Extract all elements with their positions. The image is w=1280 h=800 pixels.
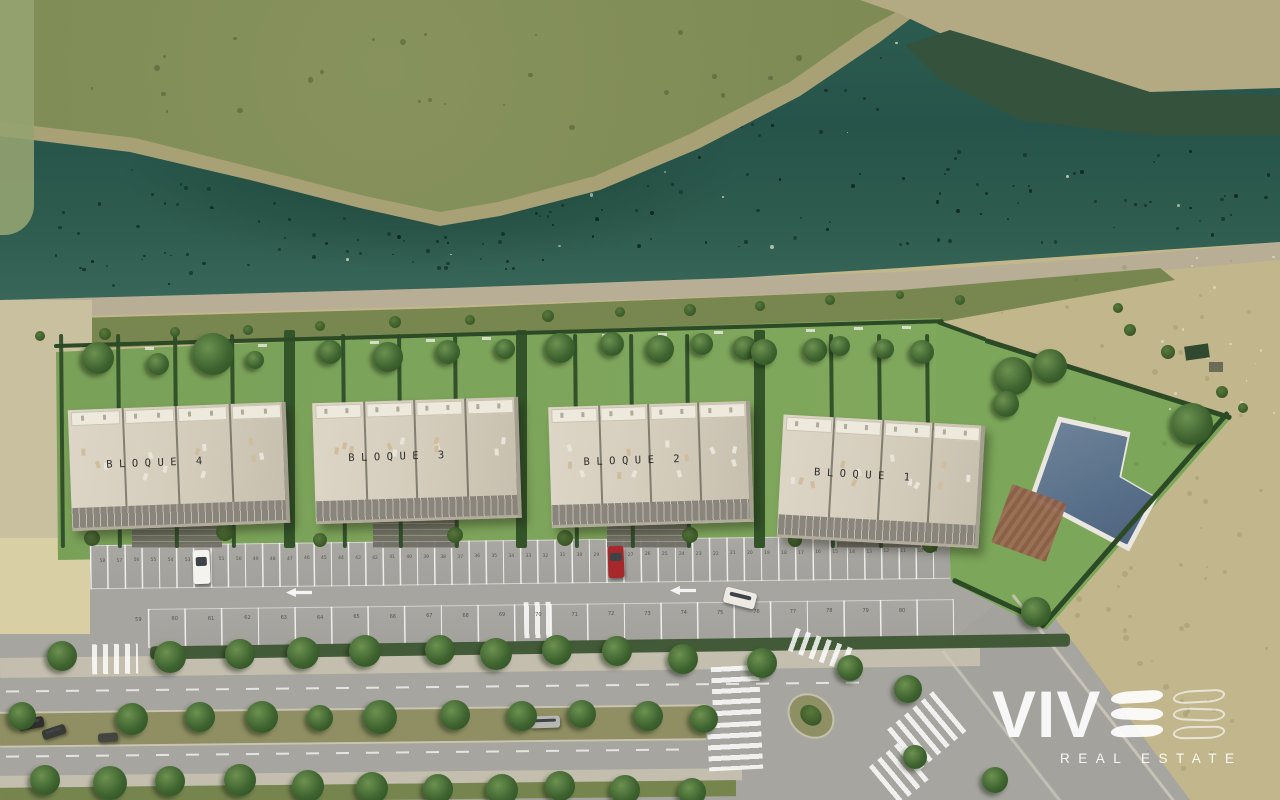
scrub-texture-dot xyxy=(1123,628,1128,633)
roof-furniture xyxy=(732,446,737,454)
bush xyxy=(99,328,111,340)
parking-number: 80 xyxy=(899,609,905,614)
water-speckle xyxy=(936,200,939,203)
water-speckle xyxy=(512,267,515,270)
water-speckle xyxy=(770,245,774,249)
scrub-texture-dot xyxy=(1178,350,1183,355)
roof-vent xyxy=(729,408,732,413)
scrub-texture-dot xyxy=(1076,596,1082,602)
land-texture-dot xyxy=(308,77,314,83)
land-texture-dot xyxy=(535,34,537,36)
roundabout-bush xyxy=(796,701,826,730)
scrub-texture-dot xyxy=(1237,532,1243,538)
land-texture-dot xyxy=(424,33,427,36)
tree xyxy=(192,333,234,375)
scrub-texture-dot xyxy=(1206,566,1208,568)
parking-number: 58 xyxy=(100,560,106,565)
tree xyxy=(542,635,572,665)
water-speckle xyxy=(1023,153,1026,156)
scrub-texture-dot xyxy=(1106,607,1111,612)
water-speckle xyxy=(164,252,166,254)
roof-top-strip xyxy=(700,403,746,418)
tree xyxy=(994,357,1032,395)
vive-logo: VIV REAL ESTATE xyxy=(992,686,1280,766)
water-speckle xyxy=(112,284,115,287)
parking-number: 22 xyxy=(713,553,719,558)
land-texture-dot xyxy=(712,74,717,79)
scrub-texture-dot xyxy=(1199,294,1202,297)
scrub-rock xyxy=(1246,380,1247,381)
parked-red-car xyxy=(607,546,624,579)
roof-vent xyxy=(709,408,712,413)
roof-furniture xyxy=(259,452,264,460)
roof-furniture xyxy=(890,455,895,463)
tree xyxy=(545,333,575,363)
roof-furniture xyxy=(937,482,943,490)
tree xyxy=(480,638,512,670)
water-speckle xyxy=(82,268,85,271)
tree xyxy=(155,766,185,796)
parking-number: 57 xyxy=(117,560,123,565)
tree xyxy=(837,655,863,681)
water-speckle xyxy=(1189,207,1192,210)
parking-number: 51 xyxy=(219,558,225,563)
water-speckle xyxy=(779,178,782,181)
roof-furniture xyxy=(665,440,669,447)
parking-number: 33 xyxy=(526,555,532,560)
parking-number: 39 xyxy=(423,556,429,561)
scrub-texture-dot xyxy=(1259,489,1263,493)
water-speckle xyxy=(1144,204,1147,207)
parking-number: 45 xyxy=(321,557,327,562)
water-speckle xyxy=(1153,161,1155,163)
parking-number: 68 xyxy=(462,614,468,619)
water-speckle xyxy=(1220,198,1224,202)
parking-number: 40 xyxy=(406,556,412,561)
water-speckle xyxy=(1080,170,1084,174)
bloque-3-label: BLOQUE 3 xyxy=(348,448,451,463)
roof-vent xyxy=(476,404,479,409)
scrub-texture-dot xyxy=(1001,312,1004,315)
bush xyxy=(465,315,475,325)
water-speckle xyxy=(98,202,102,206)
tree xyxy=(690,705,718,733)
water-speckle xyxy=(758,134,761,137)
scrub-texture-dot xyxy=(1200,527,1202,529)
tree xyxy=(507,701,537,731)
scrub-texture-dot xyxy=(1151,660,1153,662)
water-speckle xyxy=(202,262,205,265)
land-texture-dot xyxy=(796,55,801,60)
water-speckle xyxy=(1267,173,1271,177)
bush xyxy=(1124,324,1136,336)
parking-number: 23 xyxy=(696,553,702,558)
land-texture-dot xyxy=(444,103,446,105)
tree xyxy=(751,339,777,365)
water-speckle xyxy=(1157,154,1160,157)
tree xyxy=(633,701,663,731)
tree xyxy=(747,648,777,678)
tree xyxy=(830,336,850,356)
tree xyxy=(373,342,403,372)
tree xyxy=(224,764,256,796)
northwest-edge-strip xyxy=(0,0,34,235)
roof-top-strip xyxy=(885,422,931,439)
water-speckle xyxy=(751,123,754,126)
tree xyxy=(356,772,388,800)
water-speckle xyxy=(91,260,94,263)
water-speckle xyxy=(976,183,979,186)
tree xyxy=(993,391,1019,417)
roof-vent xyxy=(375,408,378,413)
bloque-1-building: BLOQUE 1 xyxy=(777,414,986,548)
bush xyxy=(1113,303,1123,313)
roof-furniture xyxy=(202,444,207,451)
roof-vent xyxy=(210,411,213,416)
parking-number: 78 xyxy=(826,609,832,614)
tree xyxy=(147,353,169,375)
car-windshield xyxy=(101,734,115,737)
parking-number: 35 xyxy=(491,555,497,560)
parking-number: 63 xyxy=(281,616,287,621)
water-speckle xyxy=(948,239,952,243)
scrub-texture-dot xyxy=(1265,647,1268,650)
plot-gate-mark xyxy=(370,341,379,344)
land-texture-dot xyxy=(569,125,574,130)
scrub-texture-dot xyxy=(1134,462,1138,466)
parking-number: 46 xyxy=(304,557,310,562)
scrub-rock xyxy=(1260,349,1263,352)
bush xyxy=(557,530,573,546)
water-speckle xyxy=(906,242,909,245)
roof-vent xyxy=(894,427,897,432)
water-speckle xyxy=(939,192,941,194)
water-speckle xyxy=(746,173,749,176)
land-texture-dot xyxy=(503,104,505,106)
tree xyxy=(185,702,215,732)
water-speckle xyxy=(1012,185,1014,187)
bush xyxy=(615,307,625,317)
crosswalk xyxy=(524,602,557,639)
parking-number: 19 xyxy=(764,552,770,557)
roof-furniture xyxy=(942,461,947,469)
tree xyxy=(425,635,455,665)
parking-number: 41 xyxy=(389,556,395,561)
roof-vent xyxy=(346,408,349,413)
bloque-4-building: BLOQUE 4 xyxy=(68,402,290,531)
bloque-3-building: BLOQUE 3 xyxy=(312,397,522,524)
roof-furniture xyxy=(810,481,815,488)
land-texture-dot xyxy=(528,73,532,77)
water-speckle xyxy=(957,150,961,154)
tree xyxy=(307,705,333,731)
tree xyxy=(82,342,114,374)
bush xyxy=(313,533,327,547)
land-texture-dot xyxy=(320,70,324,74)
parking-number: 27 xyxy=(628,554,634,559)
scrub-texture-dot xyxy=(1075,613,1080,618)
water-speckle xyxy=(826,228,829,231)
tree xyxy=(568,700,596,728)
scrub-texture-dot xyxy=(1137,661,1142,666)
scrub-texture-dot xyxy=(1075,278,1078,281)
scrub-rock xyxy=(1210,291,1212,293)
water-speckle xyxy=(851,184,855,188)
scrub-rock xyxy=(1213,286,1216,289)
tree xyxy=(678,778,706,800)
parking-number: 55 xyxy=(151,559,157,564)
tree xyxy=(8,702,36,730)
logo-wave-e-outline-icon xyxy=(1173,690,1225,739)
roof-vent xyxy=(497,404,500,409)
parking-number: 60 xyxy=(172,617,178,622)
water-speckle xyxy=(1176,227,1179,230)
tree xyxy=(646,335,674,363)
parking-number: 64 xyxy=(317,616,323,621)
parking-number: 77 xyxy=(790,610,796,615)
parking-number: 70 xyxy=(535,613,541,618)
parking-number: 38 xyxy=(440,556,446,561)
parking-number: 74 xyxy=(681,611,687,616)
tree xyxy=(423,774,453,800)
water-speckle xyxy=(143,255,145,257)
tree xyxy=(903,745,927,769)
parking-number: 47 xyxy=(287,558,293,563)
parking-number: 75 xyxy=(717,611,723,616)
water-speckle xyxy=(55,254,58,257)
land-texture-dot xyxy=(154,65,160,71)
water-speckle xyxy=(189,271,192,274)
water-speckle xyxy=(954,157,957,160)
roof-furniture xyxy=(567,444,573,452)
tree xyxy=(910,340,934,364)
scrub-rock xyxy=(1273,412,1275,414)
tree xyxy=(982,767,1008,793)
land-texture-dot xyxy=(372,38,375,41)
land-texture-dot xyxy=(237,108,243,114)
water-speckle xyxy=(800,217,802,219)
water-speckle xyxy=(899,243,902,246)
roof-top-strip xyxy=(835,419,881,436)
roof-furniture xyxy=(200,470,206,478)
scrub-texture-dot xyxy=(1179,563,1183,567)
roof-vent xyxy=(844,424,847,429)
water-speckle xyxy=(859,173,861,175)
roof-furniture xyxy=(251,455,256,463)
land-texture-dot xyxy=(91,87,94,90)
water-speckle xyxy=(705,241,707,243)
scrub-texture-dot xyxy=(1117,585,1120,588)
water-speckle xyxy=(738,246,740,248)
roof-vent xyxy=(914,428,917,433)
scrub-texture-dot xyxy=(1128,615,1132,619)
roof-top-strip xyxy=(231,404,281,420)
parking-number: 54 xyxy=(168,559,174,564)
scrub-rock xyxy=(1191,265,1193,267)
crosswalk xyxy=(92,644,139,675)
water-speckle xyxy=(1094,200,1097,203)
tree xyxy=(1021,597,1051,627)
roof-vent xyxy=(680,409,683,414)
plot-gate-mark xyxy=(806,329,815,332)
bush xyxy=(682,527,698,543)
parking-number: 73 xyxy=(644,612,650,617)
scrub-texture-dot xyxy=(1239,414,1243,418)
scrub-texture-dot xyxy=(1223,570,1227,574)
water-speckle xyxy=(744,240,747,243)
water-speckle xyxy=(1264,196,1268,200)
land-texture-dot xyxy=(166,110,169,113)
parking-number: 50 xyxy=(236,558,242,563)
tree xyxy=(93,766,127,800)
car-windshield xyxy=(195,557,207,566)
water-speckle xyxy=(1149,201,1152,204)
land-texture-dot xyxy=(428,98,432,102)
parking-number: 65 xyxy=(353,615,359,620)
water-speckle xyxy=(1224,195,1226,197)
roof-vent xyxy=(241,410,244,415)
water-speckle xyxy=(79,267,81,269)
roof-vent xyxy=(610,412,613,417)
scrub-texture-dot xyxy=(1205,376,1210,381)
parking-number: 15 xyxy=(832,551,838,556)
roof-furniture xyxy=(494,449,499,456)
scrub-texture-dot xyxy=(1123,635,1129,641)
scrub-texture-dot xyxy=(1247,310,1252,315)
water-speckle xyxy=(829,221,831,223)
tree xyxy=(154,641,186,673)
scrub-rock xyxy=(1174,392,1177,395)
water-speckle xyxy=(1134,203,1137,206)
roof-vent xyxy=(134,414,137,419)
roof-vent xyxy=(157,413,160,418)
tree xyxy=(495,339,515,359)
car xyxy=(98,732,119,742)
roof-furniture xyxy=(249,438,253,445)
scrub-texture-dot xyxy=(1065,305,1069,309)
water-speckle xyxy=(847,132,849,134)
tree xyxy=(600,332,624,356)
scrub-rock xyxy=(1182,328,1184,330)
water-speckle xyxy=(62,211,65,214)
roof-furniture xyxy=(142,472,148,480)
bloque-2-building: BLOQUE 2 xyxy=(548,401,754,528)
water-speckle xyxy=(1028,185,1030,187)
parking-number: 66 xyxy=(390,615,396,620)
roof-top-strip xyxy=(601,406,647,421)
tree xyxy=(691,333,713,355)
bush xyxy=(243,325,253,335)
water-speckle xyxy=(1113,227,1115,229)
bush xyxy=(216,523,234,541)
bush xyxy=(1216,386,1228,398)
water-speckle xyxy=(944,173,946,175)
roof-furniture xyxy=(579,469,585,477)
water-speckle xyxy=(1041,241,1044,244)
scrub-texture-dot xyxy=(1100,344,1104,348)
water-speckle xyxy=(980,213,982,215)
water-speckle xyxy=(1124,199,1127,202)
water-speckle xyxy=(937,238,940,241)
roof-vent xyxy=(943,430,946,435)
roof-furniture xyxy=(341,442,347,450)
water-speckle xyxy=(186,253,190,257)
water-speckle xyxy=(1073,172,1076,175)
bush xyxy=(955,295,965,305)
parking-number: 72 xyxy=(608,612,614,617)
parking-number: 53 xyxy=(185,559,191,564)
car xyxy=(192,550,210,585)
plot-gate-mark xyxy=(482,337,491,340)
roof-furniture xyxy=(798,477,804,485)
scrub-rock xyxy=(1229,343,1232,346)
parking-number: 56 xyxy=(134,559,140,564)
roof-furniture xyxy=(501,437,506,444)
water-speckle xyxy=(985,192,988,195)
scrub-rock xyxy=(1161,340,1163,342)
roof-top-strip xyxy=(315,404,362,419)
water-speckle xyxy=(793,236,797,240)
water-speckle xyxy=(895,42,898,45)
land-texture-dot xyxy=(768,76,773,81)
scrub-texture-dot xyxy=(1179,626,1184,631)
roof-top-strip xyxy=(416,401,463,416)
roof-vent xyxy=(324,409,327,414)
bush xyxy=(389,316,401,328)
scrub-texture-dot xyxy=(1200,315,1204,319)
water-speckle xyxy=(1066,175,1069,178)
roof-vent xyxy=(447,405,450,410)
parking-number: 16 xyxy=(815,551,821,556)
land-texture-dot xyxy=(721,93,725,97)
tree xyxy=(287,637,319,669)
parking-number: 69 xyxy=(499,613,505,618)
water-speckle xyxy=(505,268,507,270)
lower-terrace-band xyxy=(551,499,750,525)
roof-vent xyxy=(816,423,819,428)
bush xyxy=(84,530,100,546)
roof-vent xyxy=(425,406,428,411)
scrub-rock xyxy=(1272,256,1274,258)
parking-number: 37 xyxy=(457,556,463,561)
bush xyxy=(170,327,180,337)
parking-number: 49 xyxy=(253,558,259,563)
scrub-texture-dot xyxy=(1204,577,1207,580)
roof-vent xyxy=(659,410,662,415)
roof-furniture xyxy=(790,477,795,484)
water-speckle xyxy=(844,89,847,92)
parking-number: 25 xyxy=(662,553,668,558)
scrub-texture-dot xyxy=(1184,623,1190,629)
water-speckle xyxy=(168,283,170,285)
bush xyxy=(1238,403,1248,413)
parking-number: 71 xyxy=(572,613,578,618)
tree xyxy=(803,338,827,362)
roof-vent xyxy=(795,421,798,426)
tree xyxy=(894,675,922,703)
parking-number: 67 xyxy=(426,614,432,619)
water-speckle xyxy=(1007,218,1009,220)
water-speckle xyxy=(771,124,774,127)
plot-gate-mark xyxy=(258,344,267,347)
tree xyxy=(363,700,397,734)
water-speckle xyxy=(819,130,823,134)
tree xyxy=(318,340,342,364)
roof-top-strip xyxy=(124,408,174,424)
scrub-texture-dot xyxy=(1152,369,1158,375)
parking-number: 42 xyxy=(372,557,378,562)
land-texture-dot xyxy=(163,55,166,58)
